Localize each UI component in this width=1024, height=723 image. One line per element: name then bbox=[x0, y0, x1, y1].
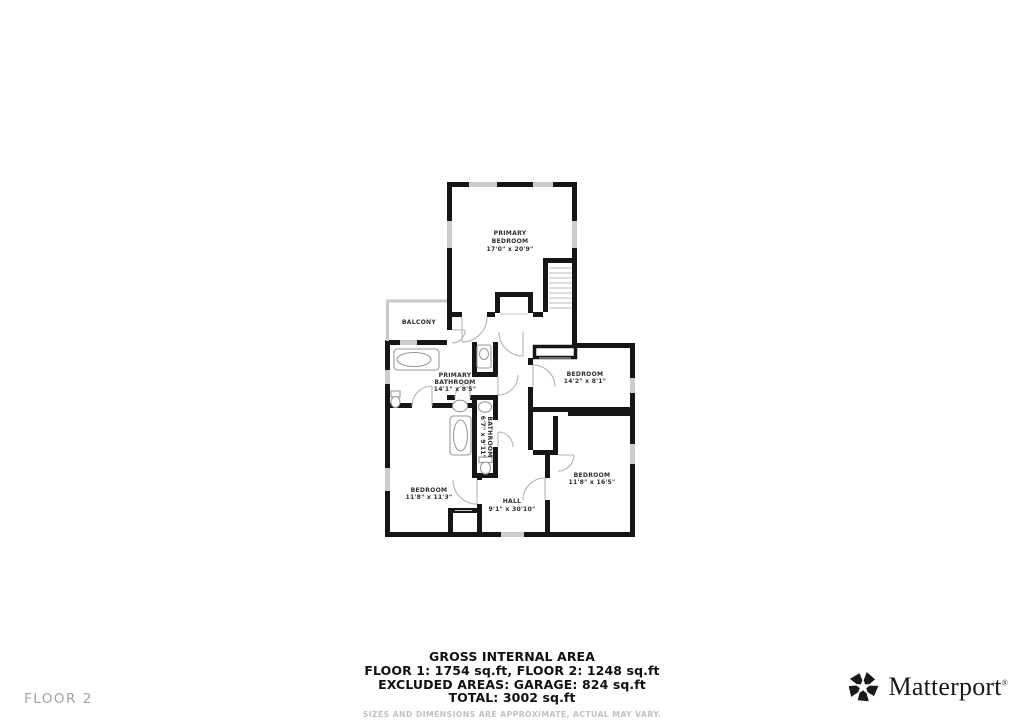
stairs bbox=[549, 268, 572, 308]
floor-plan: PRIMARY BEDROOM 17'0" x 20'9" BALCONY PR… bbox=[0, 0, 1024, 723]
summary-title: GROSS INTERNAL AREA bbox=[0, 650, 1024, 664]
floor-label: FLOOR 2 bbox=[24, 691, 93, 707]
svg-text:11'8" x 11'3": 11'8" x 11'3" bbox=[406, 494, 453, 501]
registered-mark-icon: ® bbox=[1002, 678, 1008, 687]
svg-text:9'1" x 30'10": 9'1" x 30'10" bbox=[489, 506, 536, 513]
summary-disclaimer: SIZES AND DIMENSIONS ARE APPROXIMATE, AC… bbox=[0, 708, 1024, 722]
svg-text:14'2" x 8'1": 14'2" x 8'1" bbox=[564, 378, 606, 385]
svg-text:17'0" x 20'9": 17'0" x 20'9" bbox=[487, 246, 534, 253]
room-label-bedroom-top: BEDROOM 14'2" x 8'1" bbox=[564, 371, 606, 385]
svg-text:BEDROOM: BEDROOM bbox=[492, 238, 529, 245]
svg-text:BEDROOM: BEDROOM bbox=[567, 371, 604, 378]
svg-text:BEDROOM: BEDROOM bbox=[411, 487, 448, 494]
room-label-primary-bedroom: PRIMARY BEDROOM 17'0" x 20'9" bbox=[487, 230, 534, 253]
matterport-pinwheel-icon bbox=[846, 670, 880, 704]
sink-icon bbox=[453, 400, 468, 412]
sink-icon bbox=[479, 402, 492, 412]
room-label-bedroom-left: BEDROOM 11'8" x 11'3" bbox=[406, 487, 453, 501]
svg-text:BALCONY: BALCONY bbox=[402, 319, 436, 326]
room-label-balcony: BALCONY bbox=[402, 319, 436, 326]
svg-text:BEDROOM: BEDROOM bbox=[574, 472, 611, 479]
room-label-bedroom-right: BEDROOM 11'8" x 16'5" bbox=[569, 472, 616, 486]
room-label-bathroom: BATHROOM 6'7" x 9'11" bbox=[479, 416, 493, 458]
svg-text:11'8" x 16'5": 11'8" x 16'5" bbox=[569, 479, 616, 486]
room-label-hall: HALL 9'1" x 30'10" bbox=[489, 498, 536, 513]
svg-text:PRIMARY: PRIMARY bbox=[494, 230, 527, 237]
room-label-primary-bathroom: PRIMARY BATHROOM 14'1" x 8'5" bbox=[434, 372, 476, 393]
svg-text:HALL: HALL bbox=[503, 498, 522, 505]
svg-text:BATHROOM: BATHROOM bbox=[434, 379, 475, 386]
svg-text:6'7" x 9'11": 6'7" x 9'11" bbox=[479, 416, 486, 458]
brand-name: Matterport bbox=[889, 672, 1002, 701]
closet-box bbox=[535, 347, 576, 358]
svg-text:BATHROOM: BATHROOM bbox=[486, 416, 493, 457]
matterport-logo: Matterport® bbox=[846, 670, 1008, 704]
svg-text:14'1" x 8'5": 14'1" x 8'5" bbox=[434, 386, 476, 393]
matterport-wordmark: Matterport® bbox=[889, 672, 1008, 702]
svg-text:PRIMARY: PRIMARY bbox=[439, 372, 472, 379]
